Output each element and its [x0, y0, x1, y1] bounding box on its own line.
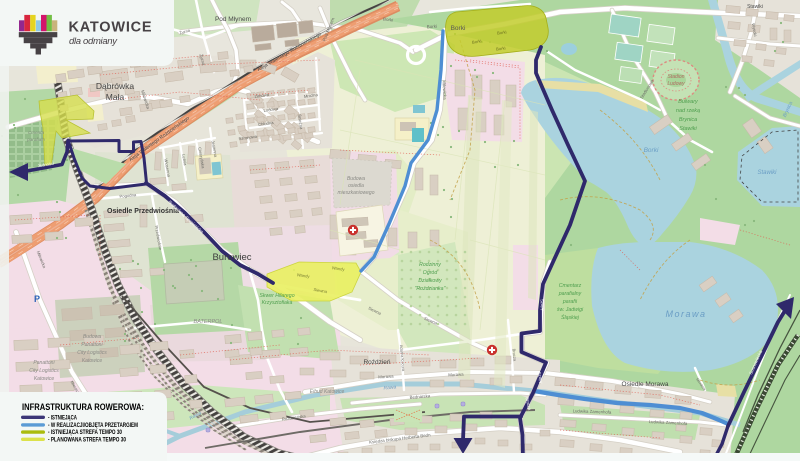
svg-text:Rodzinny: Rodzinny: [419, 262, 441, 268]
svg-text:- PLANOWANA STREFA TEMPO 30: - PLANOWANA STREFA TEMPO 30: [48, 437, 127, 443]
svg-text:osiedla: osiedla: [348, 183, 364, 189]
svg-text:City Logistics: City Logistics: [77, 350, 107, 356]
svg-text:Śląskiej: Śląskiej: [561, 314, 580, 321]
svg-text:Cmenta: Cmenta: [28, 130, 45, 135]
svg-text:Borki: Borki: [383, 16, 394, 22]
svg-text:Borki: Borki: [644, 147, 659, 154]
svg-text:Borki: Borki: [451, 25, 466, 32]
svg-text:Burowiec: Burowiec: [212, 252, 251, 263]
svg-text:Dąbrówka: Dąbrówka: [96, 81, 135, 91]
svg-text:Osiedle Przedwiośnia: Osiedle Przedwiośnia: [107, 208, 179, 215]
svg-text:Panattoni: Panattoni: [33, 360, 55, 366]
svg-text:Osiedle Morawa: Osiedle Morawa: [622, 381, 669, 388]
svg-text:Roździeń: Roździeń: [363, 359, 390, 366]
svg-text:Borki: Borki: [427, 24, 438, 30]
svg-text:Stawiki: Stawiki: [679, 126, 697, 132]
svg-text:Pod Młynem: Pod Młynem: [215, 16, 251, 23]
svg-text:Stadion: Stadion: [668, 74, 685, 80]
svg-text:Panattoni: Panattoni: [81, 342, 103, 348]
svg-text:Brynica: Brynica: [679, 117, 697, 123]
svg-text:INFRASTRUKTURA ROWEROWA:: INFRASTRUKTURA ROWEROWA:: [22, 402, 144, 412]
svg-text:Katowice: Katowice: [82, 358, 103, 364]
svg-text:Stawiki: Stawiki: [757, 170, 777, 176]
svg-text:Cmentarz: Cmentarz: [559, 283, 582, 289]
svg-text:KATOWICE: KATOWICE: [69, 20, 155, 36]
svg-text:mieszkaniowego: mieszkaniowego: [338, 190, 375, 196]
svg-text:nad rzeką: nad rzeką: [676, 108, 700, 114]
svg-text:Krzysztofiaka: Krzysztofiaka: [262, 300, 293, 306]
svg-text:parafialn: parafialn: [26, 137, 45, 142]
svg-text:Skwer Hilarego: Skwer Hilarego: [259, 293, 294, 299]
svg-text:City Logistics: City Logistics: [29, 368, 59, 374]
svg-text:parafii: parafii: [562, 299, 578, 305]
svg-text:Bulwary: Bulwary: [678, 99, 699, 105]
svg-text:Morawa: Morawa: [448, 372, 464, 378]
svg-text:Budowa: Budowa: [347, 176, 365, 182]
svg-text:Milowicka: Milowicka: [441, 80, 447, 100]
svg-text:Budowa: Budowa: [83, 334, 101, 340]
svg-text:św. Jadwigi: św. Jadwigi: [557, 307, 584, 313]
svg-text:- W REALIZACJI/OBJĘTA PRZETARG: - W REALIZACJI/OBJĘTA PRZETARGIEM: [48, 423, 138, 429]
svg-text:BATERPOL: BATERPOL: [194, 319, 223, 325]
svg-text:- ISTNIEJĄCA: - ISTNIEJĄCA: [48, 415, 77, 421]
svg-text:Mała: Mała: [106, 92, 125, 102]
svg-text:Ogród: Ogród: [423, 270, 439, 276]
svg-text:Eibud Katowice: Eibud Katowice: [310, 389, 345, 395]
svg-text:Stawiki: Stawiki: [747, 4, 763, 10]
svg-text:- ISTNIEJĄCA STREFA TEMPO 30: - ISTNIEJĄCA STREFA TEMPO 30: [48, 430, 123, 436]
svg-text:Katowice: Katowice: [34, 376, 55, 382]
svg-text:dla odmiany: dla odmiany: [69, 36, 118, 47]
svg-text:parafialny: parafialny: [558, 291, 582, 297]
svg-text:Działkowy: Działkowy: [418, 278, 442, 284]
svg-text:Morawa: Morawa: [665, 309, 706, 319]
svg-text:Ludowy: Ludowy: [667, 81, 685, 87]
svg-text:"Roździanka": "Roździanka": [415, 286, 447, 292]
svg-text:P: P: [34, 294, 40, 304]
